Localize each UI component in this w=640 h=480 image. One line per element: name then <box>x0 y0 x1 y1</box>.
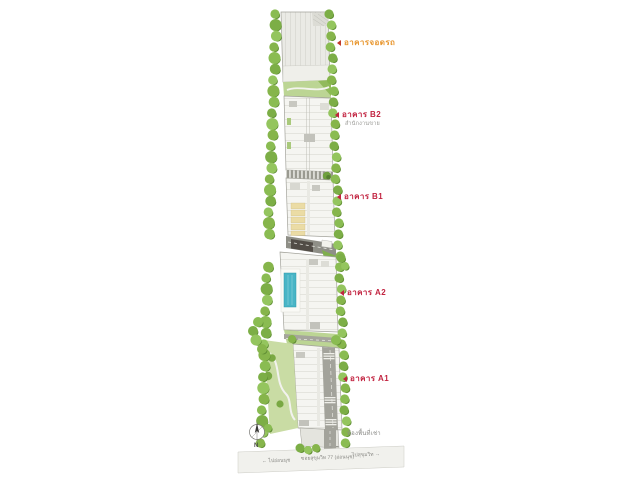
label-parking-text: อาคารจอดรถ <box>344 36 395 49</box>
label-parking-building: อาคารจอดรถ <box>337 36 395 49</box>
site-plan-page: อาคารจอดรถ อาคาร B2 สำนักงานขาย อาคาร B1… <box>0 0 640 480</box>
rental-area-note: ห้องพื้นที่เช่า <box>347 428 381 438</box>
swimming-pool <box>284 273 296 307</box>
label-b2-subtitle: สำนักงานขาย <box>345 120 380 128</box>
label-a1-text: อาคาร A1 <box>350 372 389 385</box>
pointer-icon <box>343 376 347 382</box>
label-building-a1: อาคาร A1 <box>343 372 389 385</box>
road-direction-left: ← ไปอ่อนนุช <box>262 457 291 466</box>
label-a2-text: อาคาร A2 <box>347 286 386 299</box>
pointer-icon <box>340 290 344 296</box>
site-plan-drawing <box>0 0 640 480</box>
label-building-b1: อาคาร B1 <box>337 190 383 203</box>
label-building-a2: อาคาร A2 <box>340 286 386 299</box>
north-label: N <box>254 443 258 449</box>
road-direction-right: ไปสุขุมวิท → <box>352 451 380 460</box>
label-b1-text: อาคาร B1 <box>344 190 383 203</box>
pointer-icon <box>337 40 341 46</box>
pointer-icon <box>335 112 339 118</box>
pointer-icon <box>337 194 341 200</box>
